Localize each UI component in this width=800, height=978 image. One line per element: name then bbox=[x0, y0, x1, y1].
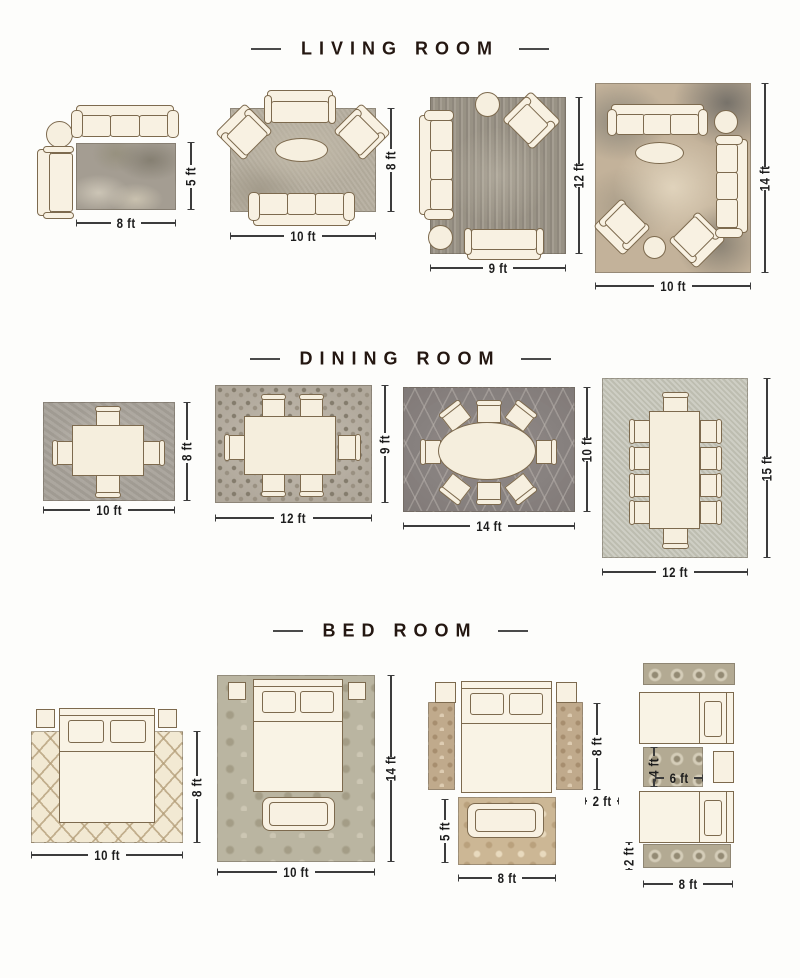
dimension-width: 10 ft bbox=[43, 502, 175, 518]
dimension-height: 12 ft bbox=[570, 97, 588, 254]
loveseat bbox=[465, 229, 543, 260]
dimension-accent-rug-width: 6 ft bbox=[655, 770, 703, 786]
bench bbox=[467, 803, 544, 838]
dining-table bbox=[649, 411, 700, 529]
dimension-width: 10 ft bbox=[230, 228, 376, 244]
dimension-height: 8 ft bbox=[382, 108, 400, 212]
dimension-runner-length: 8 ft bbox=[588, 703, 606, 790]
bench bbox=[262, 797, 335, 831]
headboard bbox=[254, 680, 342, 687]
pillow bbox=[704, 701, 722, 737]
dimension-runner-width: 2 ft bbox=[620, 842, 638, 870]
nightstand bbox=[435, 682, 456, 703]
round-side-table bbox=[475, 92, 500, 117]
twin-bed bbox=[639, 692, 734, 744]
dimension-height: 10 ft bbox=[578, 387, 596, 512]
loveseat bbox=[265, 90, 335, 123]
rug-8x5 bbox=[76, 143, 176, 210]
oval-coffee-table bbox=[635, 142, 684, 164]
dimension-width: 12 ft bbox=[215, 510, 372, 526]
bed bbox=[59, 708, 155, 823]
pillow bbox=[68, 720, 104, 742]
dimension-runner-length: 8 ft bbox=[643, 876, 733, 892]
oval-coffee-table bbox=[275, 138, 328, 162]
dining-chair bbox=[700, 420, 719, 443]
dimension-foot-rug-width: 8 ft bbox=[458, 870, 556, 886]
runner-rug-right bbox=[556, 702, 583, 790]
nightstand bbox=[158, 709, 177, 728]
section-heading: BED ROOM bbox=[323, 619, 478, 641]
dining-chair bbox=[96, 473, 120, 495]
title-dash-right bbox=[498, 630, 528, 632]
sofa bbox=[250, 193, 353, 226]
title-dash-left bbox=[250, 358, 280, 360]
dimension-height: 14 ft bbox=[756, 83, 774, 273]
runner-rug-top bbox=[643, 663, 735, 685]
dimension-height: 14 ft bbox=[382, 675, 400, 862]
dining-chair bbox=[338, 435, 358, 460]
dimension-width: 14 ft bbox=[403, 518, 575, 534]
chaise bbox=[37, 147, 73, 218]
section-title-bed-room: BED ROOM bbox=[0, 620, 800, 641]
dining-chair bbox=[477, 403, 501, 423]
section-title-dining-room: DINING ROOM bbox=[0, 348, 800, 369]
twin-bed bbox=[639, 791, 734, 843]
dimension-height: 9 ft bbox=[376, 385, 394, 503]
pillow bbox=[300, 691, 334, 713]
runner-rug-left bbox=[428, 702, 455, 790]
round-side-table bbox=[428, 225, 453, 250]
pillow bbox=[470, 693, 504, 715]
dimension-width: 8 ft bbox=[76, 215, 176, 231]
title-dash-right bbox=[519, 48, 549, 50]
dining-table bbox=[244, 416, 336, 475]
dimension-height: 8 ft bbox=[178, 402, 196, 501]
pillow bbox=[704, 800, 722, 836]
dining-chair bbox=[663, 526, 688, 546]
headboard bbox=[726, 693, 733, 743]
rug-size-guide: LIVING ROOM 8 ft 5 ft bbox=[0, 0, 800, 978]
dimension-width: 10 ft bbox=[217, 864, 375, 880]
dining-chair bbox=[700, 501, 719, 524]
dining-table bbox=[72, 425, 144, 476]
headboard bbox=[462, 682, 551, 689]
title-dash-left bbox=[273, 630, 303, 632]
sofa bbox=[419, 112, 453, 218]
pillow bbox=[110, 720, 146, 742]
title-dash-left bbox=[251, 48, 281, 50]
headboard bbox=[726, 792, 733, 842]
dimension-width: 10 ft bbox=[595, 278, 751, 294]
round-side-table bbox=[643, 236, 666, 259]
dimension-height: 15 ft bbox=[758, 378, 776, 558]
section-heading: DINING ROOM bbox=[300, 347, 501, 369]
pillow bbox=[262, 691, 296, 713]
round-side-table bbox=[46, 121, 73, 148]
section-heading: LIVING ROOM bbox=[301, 37, 499, 59]
runner-rug-bottom bbox=[643, 844, 731, 868]
dining-chair bbox=[477, 482, 501, 502]
dining-chair bbox=[536, 440, 554, 464]
nightstand bbox=[713, 751, 734, 783]
nightstand bbox=[556, 682, 577, 703]
title-dash-right bbox=[521, 358, 551, 360]
sofa bbox=[608, 104, 707, 135]
dimension-height: 5 ft bbox=[182, 142, 200, 210]
dining-chair bbox=[700, 447, 719, 470]
nightstand bbox=[36, 709, 55, 728]
headboard bbox=[60, 709, 154, 716]
sofa bbox=[73, 105, 177, 137]
dimension-width: 10 ft bbox=[31, 847, 183, 863]
dimension-runner-width: 2 ft bbox=[585, 793, 619, 809]
section-title-living-room: LIVING ROOM bbox=[0, 38, 800, 59]
oval-dining-table bbox=[438, 422, 536, 480]
dimension-width: 12 ft bbox=[602, 564, 748, 580]
dimension-width: 9 ft bbox=[430, 260, 566, 276]
nightstand bbox=[228, 682, 246, 700]
dimension-height: 8 ft bbox=[188, 731, 206, 843]
pillow bbox=[509, 693, 543, 715]
round-side-table bbox=[714, 110, 738, 134]
dimension-foot-rug-height: 5 ft bbox=[436, 799, 454, 863]
bed bbox=[253, 679, 343, 792]
bed bbox=[461, 681, 552, 793]
dining-chair bbox=[700, 474, 719, 497]
sofa bbox=[716, 136, 748, 236]
nightstand bbox=[348, 682, 366, 700]
